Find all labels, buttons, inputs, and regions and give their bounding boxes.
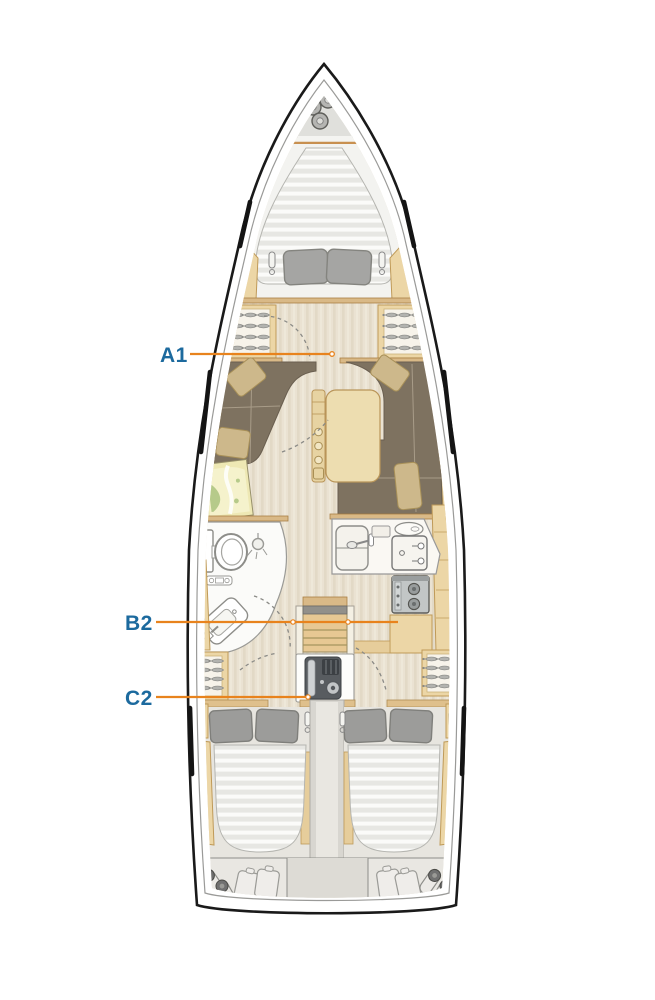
cutting-board-icon [372, 526, 390, 537]
fridge-icon [392, 536, 427, 570]
aft-berth-mattress [214, 745, 306, 852]
toilet-icon [204, 530, 247, 572]
leader-node [306, 695, 310, 699]
vent-grille-icon [206, 576, 232, 585]
stove-icon [392, 576, 429, 613]
galley-step [352, 641, 390, 653]
galley-lower-cabinet [390, 615, 432, 653]
leader-node [330, 352, 335, 357]
yacht-layout-diagram: A1 B2 C2 [0, 0, 655, 1000]
leader-node [346, 620, 350, 624]
aft-berth-mattress [348, 745, 440, 852]
label-c2-text[interactable]: C2 [125, 687, 153, 710]
hull-window [462, 708, 464, 774]
hull-window [190, 708, 192, 774]
companionway [296, 597, 354, 702]
yacht-layout-figure: A1 B2 C2 [0, 0, 655, 1000]
salon-table [312, 390, 380, 482]
bulkhead [200, 516, 288, 521]
label-b2-text[interactable]: B2 [125, 612, 153, 635]
leader-node [291, 620, 295, 624]
bulkhead [218, 298, 436, 303]
label-a1-text[interactable]: A1 [160, 344, 188, 367]
serving-dish-icon [395, 523, 423, 536]
companionway-steps [303, 606, 347, 652]
galley-sink-icon [336, 526, 374, 570]
pillow [283, 249, 372, 285]
engine-icon [296, 654, 354, 702]
interior [180, 88, 470, 908]
cockpit-locker-inner [316, 702, 338, 858]
